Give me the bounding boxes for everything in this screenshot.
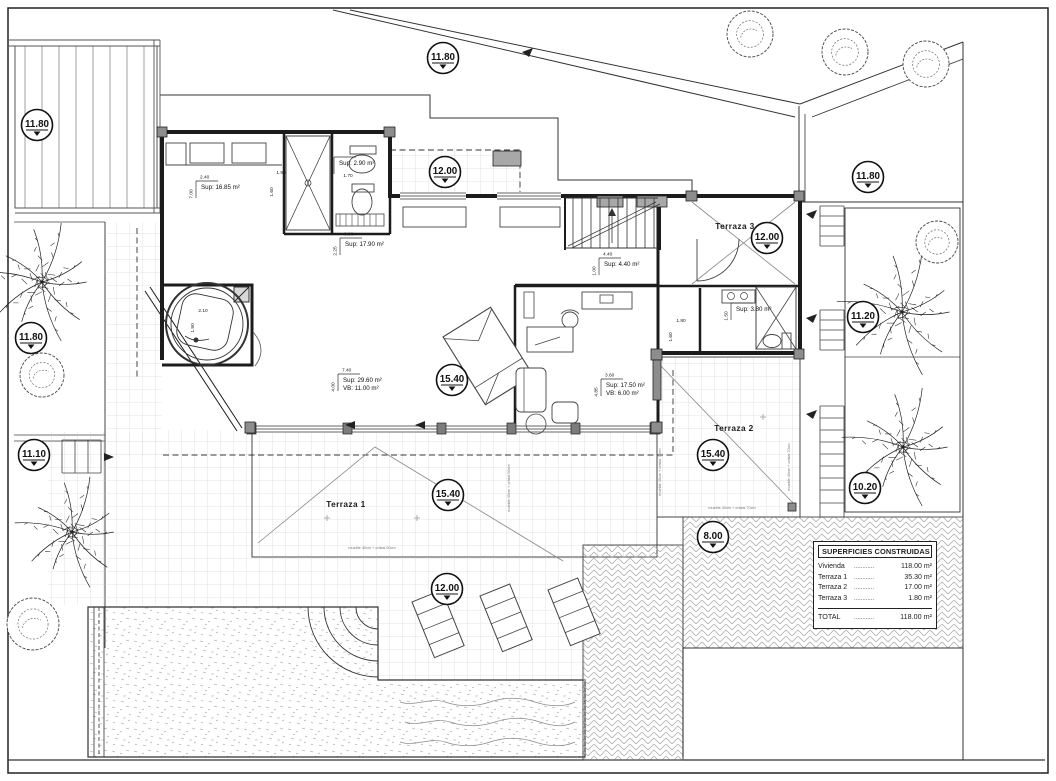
- leader-dots: ............: [854, 594, 888, 605]
- svg-text:2.25: 2.25: [333, 246, 339, 256]
- svg-text:1.00: 1.00: [592, 266, 598, 276]
- svg-text:Sup: 4.40 m²: Sup: 4.40 m²: [604, 261, 639, 268]
- svg-text:Sup: 29.60 m²: Sup: 29.60 m²: [343, 377, 382, 384]
- row-value: 17.00 m²: [888, 583, 932, 594]
- leader-dots: ............: [854, 573, 888, 584]
- bush: [20, 353, 64, 397]
- svg-text:15.40: 15.40: [440, 374, 465, 385]
- elevation-marker: 11.10: [19, 440, 50, 471]
- svg-text:3.60: 3.60: [605, 373, 615, 379]
- glass-screen-note: mueble 40cm + cristal 70cm: [708, 506, 755, 510]
- dimension-text: 1.60: [269, 187, 275, 197]
- bush: [727, 11, 773, 57]
- elevation-marker: 15.40: [437, 365, 468, 396]
- terrace-label: Terraza 2: [714, 423, 753, 433]
- total-label: TOTAL: [818, 612, 854, 623]
- surfaces-table-row: Vivienda............118.00 m²: [818, 562, 932, 573]
- elevation-marker: 11.80: [853, 162, 884, 193]
- svg-text:Sup: 17.90 m²: Sup: 17.90 m²: [345, 241, 384, 248]
- bush: [7, 598, 59, 650]
- svg-text:4.85: 4.85: [594, 387, 600, 397]
- glass-screen-note: mueble 40cm + cristal 70cm: [658, 448, 662, 495]
- surfaces-table-row: Terraza 1............35.30 m²: [818, 573, 932, 584]
- elevation-marker: 11.80: [428, 43, 459, 74]
- kitchen-counter: [166, 143, 282, 165]
- surfaces-table: SUPERFICIES CONSTRUIDAS Vivienda........…: [813, 541, 937, 629]
- svg-text:1.50: 1.50: [724, 311, 730, 321]
- svg-text:4.40: 4.40: [603, 252, 613, 258]
- leader-dots: ............: [854, 613, 888, 624]
- leader-dots: ............: [854, 562, 888, 573]
- svg-text:11.10: 11.10: [22, 449, 47, 460]
- terrace-label: Terraza 1: [326, 499, 365, 509]
- surfaces-table-title: SUPERFICIES CONSTRUIDAS: [818, 545, 932, 558]
- svg-text:Sup: 3.80 m²: Sup: 3.80 m²: [736, 306, 771, 313]
- svg-text:12.00: 12.00: [435, 583, 460, 594]
- dimension-text: 1.90: [190, 323, 196, 333]
- elevation-marker: 11.80: [22, 110, 53, 141]
- svg-text:8.00: 8.00: [344, 232, 354, 238]
- surfaces-table-row: Terraza 3............1.80 m²: [818, 594, 932, 605]
- svg-text:15.40: 15.40: [701, 449, 726, 460]
- svg-text:15.40: 15.40: [436, 489, 461, 500]
- row-value: 35.30 m²: [888, 573, 932, 584]
- surfaces-table-total-row: TOTAL ............ 118.00 m²: [818, 608, 932, 624]
- dimension-text: 1.90: [276, 170, 286, 176]
- svg-text:Sup: 2.90 m²: Sup: 2.90 m²: [339, 160, 374, 167]
- dimension-text: 2.10: [198, 308, 208, 314]
- svg-text:11.80: 11.80: [431, 52, 456, 63]
- bush: [903, 41, 949, 87]
- floor-plan-page: 2.407.00Sup: 16.85 m²Sup: 2.90 m²8.002.2…: [0, 0, 1056, 781]
- bush: [822, 29, 868, 75]
- elevation-marker: 12.00: [430, 157, 461, 188]
- surfaces-table-rows: Vivienda............118.00 m²Terraza 1..…: [818, 562, 932, 604]
- dimension-text: 1.80: [676, 318, 686, 324]
- elevation-marker: 11.80: [16, 323, 47, 354]
- terrace-label: Terraza 3: [715, 221, 754, 231]
- row-value: 118.00 m²: [888, 562, 932, 573]
- glass-screen-note: mueble 40cm + cristal 50cm: [507, 464, 511, 511]
- elevation-marker: 12.00: [432, 574, 463, 605]
- row-label: Terraza 1: [818, 573, 854, 584]
- svg-text:12.00: 12.00: [755, 232, 780, 243]
- elevation-marker: 12.00: [752, 223, 783, 254]
- svg-text:7.40: 7.40: [342, 368, 352, 374]
- elevation-marker: 10.20: [850, 473, 881, 504]
- row-label: Terraza 3: [818, 594, 854, 605]
- svg-text:8.00: 8.00: [703, 531, 723, 542]
- elevation-marker: 15.40: [698, 440, 729, 471]
- dimension-text: 1.60: [668, 332, 674, 342]
- svg-text:10.20: 10.20: [853, 482, 878, 493]
- elevation-marker: 15.40: [433, 480, 464, 511]
- glass-screen-note: mueble 40cm + cristal 70cm: [787, 443, 791, 490]
- elevation-marker: 8.00: [698, 522, 729, 553]
- svg-text:2.40: 2.40: [200, 175, 210, 181]
- row-label: Terraza 2: [818, 583, 854, 594]
- bush: [916, 221, 958, 263]
- svg-text:11.20: 11.20: [851, 311, 876, 322]
- svg-text:Sup: 17.50 m²: Sup: 17.50 m²: [606, 382, 645, 389]
- svg-text:12.00: 12.00: [433, 166, 458, 177]
- row-value: 1.80 m²: [888, 594, 932, 605]
- svg-text:7.00: 7.00: [189, 189, 195, 199]
- svg-text:11.80: 11.80: [19, 332, 44, 343]
- elevation-marker: 11.20: [848, 302, 879, 333]
- row-label: Vivienda: [818, 562, 854, 573]
- leader-dots: ............: [854, 583, 888, 594]
- svg-text:VB: 6.00 m²: VB: 6.00 m²: [606, 390, 639, 397]
- glass-screen-note: mueble 40cm + cristal 50cm: [348, 546, 395, 550]
- svg-text:VB: 11.00 m²: VB: 11.00 m²: [343, 385, 379, 392]
- total-value: 118.00 m²: [888, 612, 932, 623]
- surfaces-table-row: Terraza 2............17.00 m²: [818, 583, 932, 594]
- site-plan-drawing: 2.407.00Sup: 16.85 m²Sup: 2.90 m²8.002.2…: [0, 0, 1056, 781]
- svg-text:11.80: 11.80: [856, 171, 881, 182]
- svg-text:4.00: 4.00: [331, 382, 337, 392]
- svg-text:Sup: 16.85 m²: Sup: 16.85 m²: [201, 184, 240, 191]
- dimension-text: 1.70: [343, 173, 353, 179]
- south-window-band: [247, 423, 660, 434]
- svg-text:11.80: 11.80: [25, 119, 50, 130]
